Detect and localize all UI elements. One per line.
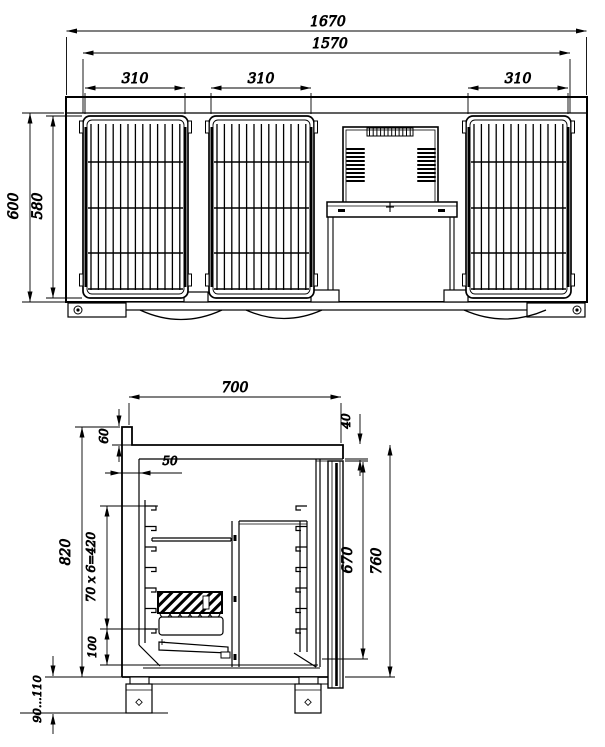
dim-label-shelf-pitch: 70 x 6=420 [84,532,98,603]
dim-label-bottom-clearance: 100 [85,636,99,658]
grille-door-middle [206,116,318,298]
technical-drawing-page: 1670 1570 310 310 310 [0,0,605,747]
shelf-brackets-left [145,506,156,633]
dim-label-leg-height: 90...110 [30,675,44,723]
grille-door-left [80,116,192,298]
dim-label-door3-width: 310 [505,71,532,87]
shelf-brackets-right [296,506,307,633]
dim-label-rear-wall: 50 [162,454,178,468]
dim-label-depth: 700 [222,380,249,396]
dim-label-inner-width: 1570 [312,36,348,52]
dim-label-door1-width: 310 [122,71,149,87]
drip-pan-middle [246,310,322,319]
dim-leg-height: 90...110 [30,656,53,734]
dim-label-door2-width: 310 [248,71,275,87]
dim-label-door-height: 580 [30,193,46,220]
compressor-tray [327,202,457,217]
door-section [328,461,343,688]
dim-label-overall-height: 600 [6,193,22,220]
evaporator-unit [158,592,230,658]
dim-depth: 700 [129,380,341,443]
dim-label-body-height: 760 [369,548,385,575]
dim-rear-upstand: 60 [75,409,132,462]
drain-pan [159,642,228,653]
front-view: 1670 1570 310 310 310 [6,14,587,320]
dim-label-top-thickness: 40 [339,413,353,430]
dim-rear-wall: 50 [105,454,182,473]
drip-pan-left [140,310,222,320]
side-section-view: 700 60 40 50 [20,380,395,734]
refrigerated-counter-drawing: 1670 1570 310 310 310 [0,0,605,747]
dim-label-overall-width: 1670 [310,14,346,30]
dim-label-overall-height-section: 820 [58,539,74,566]
interior-section [145,500,316,667]
dim-label-rear-upstand: 60 [97,428,111,444]
legs [20,677,321,713]
dim-label-door-opening-height: 670 [340,547,356,574]
grille-door-right [463,116,575,298]
